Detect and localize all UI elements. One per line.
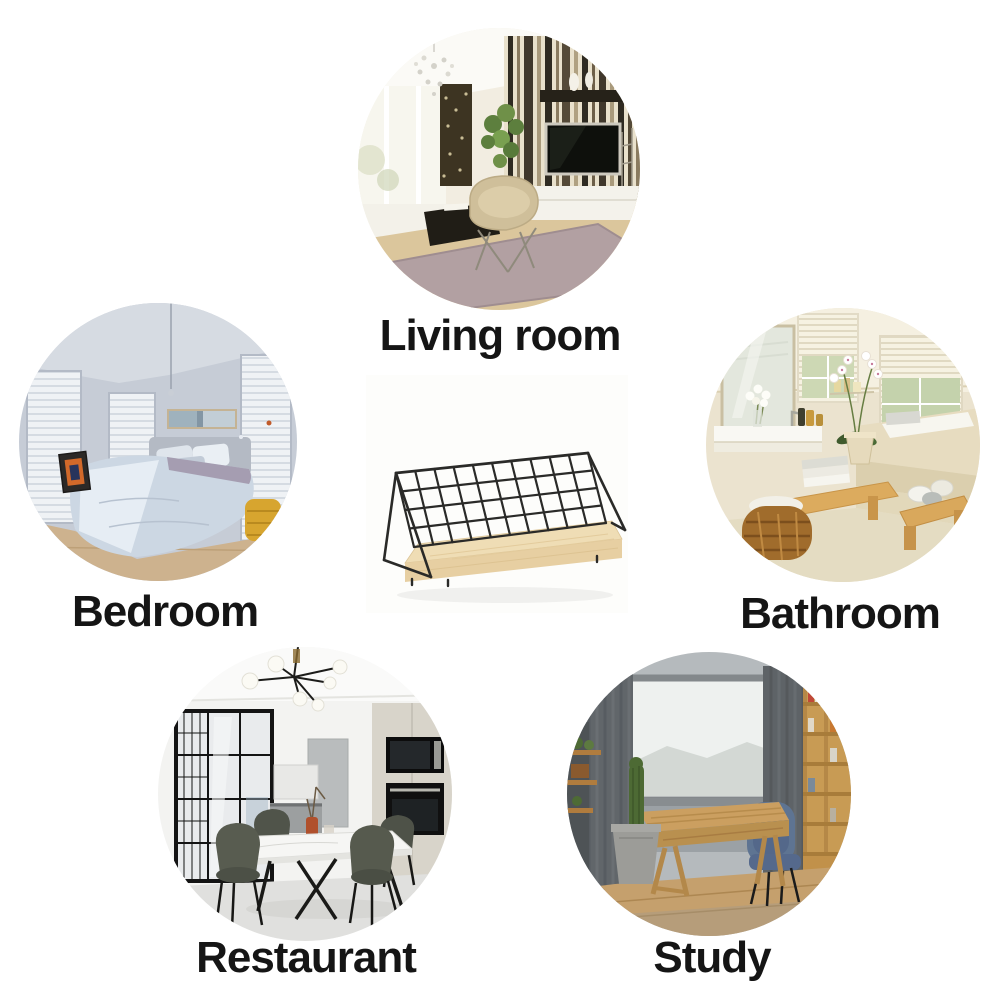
restaurant-photo [158, 647, 452, 941]
tv [546, 124, 620, 174]
bookshelf [803, 672, 851, 886]
wall-art [167, 409, 237, 429]
restaurant-scene [158, 647, 452, 941]
wicker-basket [742, 496, 812, 560]
dark-curtain [440, 84, 472, 186]
label-bathroom: Bathroom [740, 589, 940, 638]
wall-sconce [267, 421, 272, 426]
bathroom-photo [706, 308, 980, 582]
wire-shelf-product [360, 373, 640, 618]
living-room-scene [358, 28, 640, 310]
label-study: Study [653, 933, 770, 982]
study-scene [567, 652, 851, 936]
leaning-picture [59, 451, 90, 492]
product-usage-collage: Living room [0, 0, 1000, 1000]
product-photo [360, 373, 640, 618]
pendant-bulb [168, 390, 174, 396]
wall-sconce-2 [239, 435, 243, 439]
study-photo [567, 652, 851, 936]
bedroom-scene [19, 303, 297, 581]
bathroom-scene [706, 308, 980, 582]
bedroom-photo [19, 303, 297, 581]
label-living-room: Living room [380, 311, 621, 360]
tv-console [526, 186, 640, 220]
label-restaurant: Restaurant [196, 933, 416, 982]
living-room-photo [358, 28, 640, 310]
basket [245, 499, 281, 541]
label-bedroom: Bedroom [72, 587, 258, 636]
